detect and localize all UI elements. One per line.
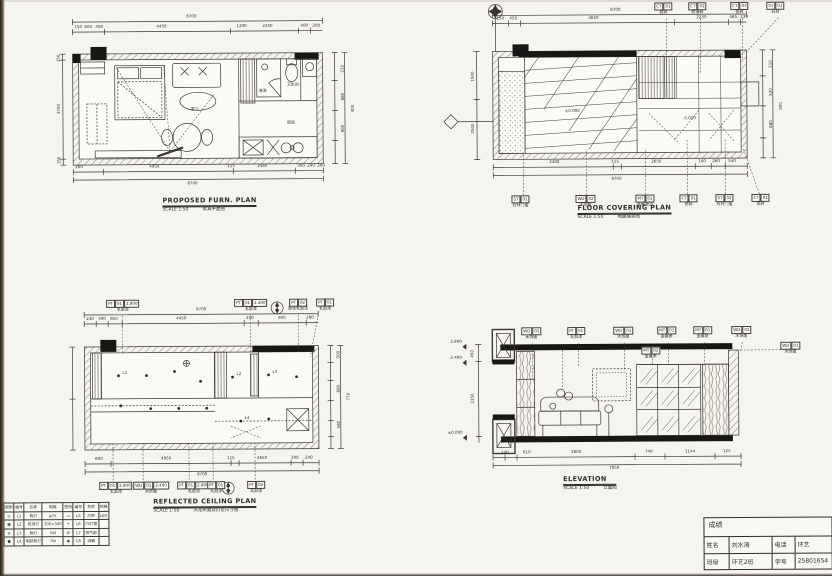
tag-label: 乳胶漆 — [247, 489, 265, 493]
legend-symbol: ☒ — [63, 528, 73, 537]
dim-label: 240 — [86, 317, 94, 321]
material-tag: ST01 石材门槛 — [511, 195, 529, 207]
level-label: -0.050 — [683, 116, 696, 120]
dim-label: 210 — [341, 65, 345, 73]
tag-label: 瓷砖 — [751, 202, 769, 206]
scan-edge-left — [0, 0, 5, 576]
ceiling-tag: PT01 乳胶漆 — [207, 481, 225, 493]
lighting-legend-table: 图例 编号 名称 规格 图例 编号 名称 规格 ⊙ L1 筒灯 φ75 ▭ L5… — [3, 502, 109, 546]
dim-label: 2500 — [471, 123, 475, 133]
plan-scale: SCALE 1:50 — [163, 208, 189, 213]
furn-plan-linework — [59, 17, 348, 183]
dim-label: 4950 — [149, 165, 159, 169]
dim-label: 200 — [75, 165, 83, 169]
field-label: 班级 — [705, 554, 730, 570]
ceiling-tag: PT01 乳胶漆 — [316, 299, 334, 311]
legend-cell: 5W — [42, 528, 63, 537]
tag-label: 防滑砖 — [688, 10, 706, 14]
dim-label: 200 — [317, 164, 325, 168]
dim-label: 150 — [57, 55, 61, 63]
dim-label: 850 — [110, 317, 118, 321]
dim-label: 600 — [84, 25, 92, 29]
plan-title-cn: 地面铺装图 — [618, 215, 641, 220]
legend-cell: L7 — [73, 528, 83, 537]
legend-cell: L4 — [14, 537, 24, 546]
dim-label: 280 — [306, 316, 314, 320]
material-tag: WD01 木饰面 — [780, 342, 800, 354]
legend-header: 图例 — [4, 503, 14, 512]
dim-label: 8700 — [196, 307, 206, 311]
dim-label: 770 — [347, 393, 351, 401]
level-label: ±0.000 — [448, 431, 463, 435]
legend-row: ● L4 明装筒灯 7W ◉ L8 浴霸 — [4, 536, 109, 545]
dim-label: 8700 — [186, 14, 196, 18]
material-tag: MT02 金属条 — [641, 347, 660, 359]
dim-label: 450 — [246, 316, 254, 320]
light-label: L4 — [245, 416, 250, 420]
tag-label: 防水乳胶漆 — [288, 307, 308, 311]
dim-label: 2400 — [549, 160, 559, 164]
field-value: 刘水涛 — [730, 537, 773, 553]
dim-label: 880 — [769, 120, 773, 128]
tag-label: 乳胶漆 — [234, 307, 267, 311]
dim-label: 8700 — [610, 8, 620, 12]
dim-label: 880 — [341, 93, 345, 101]
tag-label: 瓷砖 — [730, 10, 748, 14]
dim-label: 465 — [729, 15, 737, 19]
tag-label: 木饰面 — [133, 490, 169, 494]
material-tag: ST01 石材 — [766, 2, 784, 14]
dim-label: 150 — [496, 16, 504, 20]
dim-label: 150 — [57, 157, 61, 165]
tag-code: WD — [133, 482, 144, 490]
dim-label: 540 — [728, 159, 736, 163]
dim-label: 400 — [300, 24, 308, 28]
tag-label: 金属收边 — [635, 203, 654, 207]
room-label: 茶几 — [191, 107, 199, 111]
dim-label: 1500 — [471, 71, 475, 81]
dim-label: 120 — [740, 15, 748, 19]
tag-label: 乳胶漆 — [316, 307, 334, 311]
dim-label: 240 — [307, 164, 315, 168]
dim-label: 3700 — [57, 104, 61, 114]
light-label: L1 — [123, 371, 128, 375]
plan-title-cn: 立面图 — [603, 486, 617, 491]
tag-label: 石材门槛 — [511, 203, 529, 207]
level-label: ±0.000 — [565, 109, 580, 113]
dim-label: 4950 — [161, 456, 171, 460]
legend-cell: 吸顶灯 — [24, 520, 42, 529]
legend-cell: L8 — [73, 537, 83, 546]
tag-code: PT — [234, 299, 243, 307]
tag-code: PT — [106, 300, 115, 308]
score-label: 成绩 — [704, 517, 831, 537]
legend-cell — [99, 519, 109, 528]
furn-plan-title: PROPOSED FURN. PLAN SCALE 1:50家具平面图 — [162, 197, 256, 213]
dim-label: 740 — [645, 450, 653, 454]
material-tag: CT03 瓷砖 — [730, 2, 748, 14]
legend-row: ⊙ L1 筒灯 φ75 ▭ L5 灯带 LED — [4, 511, 109, 520]
material-tag: WD02 木地板 — [575, 195, 595, 207]
dim-label: 125 — [723, 449, 731, 453]
ceiling-plan-linework — [69, 301, 344, 495]
legend-cell: 灯带 — [83, 511, 98, 520]
tag-code: PT — [99, 482, 108, 490]
light-label: L2 — [237, 372, 242, 376]
dim-label: 900 — [779, 102, 783, 110]
tag-label: 乳胶漆 — [99, 490, 132, 494]
dim-label: 115 — [611, 160, 619, 164]
field-label: 电话 — [773, 537, 796, 553]
ceiling-tag: PT012.800 乳胶漆 — [106, 300, 139, 312]
plan-title-text: ELEVATION — [563, 476, 617, 485]
dim-label: 115 — [227, 164, 235, 168]
tag-label: 石材 — [766, 10, 784, 14]
dim-label: 4450 — [176, 316, 186, 320]
material-tag: CT01 瓷砖 — [679, 194, 697, 206]
ceiling-tag: PT012.800 乳胶漆 — [99, 482, 132, 494]
dim-label: 845 — [278, 316, 286, 320]
plan-scale: SCALE 1:50 — [578, 215, 604, 220]
field-value: 环艺 — [796, 536, 832, 552]
dim-label: 8700 — [197, 472, 207, 476]
elevation-title: ELEVATION SCALE 1:50立面图 — [563, 476, 617, 492]
dim-label: 8700 — [611, 177, 621, 181]
plan-title-cn: 家具平面图 — [202, 208, 225, 213]
dim-label: 880 — [337, 385, 341, 393]
field-value: 环艺2班 — [730, 553, 773, 569]
room-label: 淋浴 — [259, 89, 267, 93]
legend-cell: 7W — [42, 537, 63, 546]
legend-header-row: 图例 编号 名称 规格 图例 编号 名称 规格 — [4, 502, 109, 511]
material-tag: MT01 金属收边 — [635, 195, 654, 207]
dim-label: 500 — [336, 351, 340, 359]
tag-label: 木饰面 — [521, 335, 541, 339]
legend-header: 名称 — [24, 503, 42, 512]
dim-label: 115 — [227, 456, 235, 460]
legend-cell: 射灯 — [24, 528, 42, 537]
tag-code: PT — [177, 481, 186, 489]
dim-label: 240 — [305, 456, 313, 460]
dim-label: 140 — [501, 450, 509, 454]
tag-label: 金属条 — [657, 334, 676, 338]
dim-label: 2460 — [257, 164, 267, 168]
dim-label: 300 — [98, 317, 106, 321]
tag-label: 乳胶漆 — [177, 489, 210, 493]
legend-cell: 筒灯 — [24, 511, 42, 520]
material-tag: CT01 瓷砖 — [654, 2, 672, 14]
dim-label: 450 — [470, 350, 474, 358]
tag-label: 木饰面 — [780, 350, 800, 354]
ceiling-tag: PT012.800 乳胶漆 — [177, 481, 210, 493]
legend-cell — [99, 528, 109, 537]
dim-label: 1200 — [236, 24, 246, 28]
plan-scale: SCALE 1:50 — [563, 487, 589, 492]
legend-row: ▦ L2 吸顶灯 300×300 ━ L6 T5灯管 — [4, 519, 109, 528]
legend-header: 规格 — [42, 503, 63, 512]
tag-label: 金属条 — [641, 355, 660, 359]
dim-label: 580 — [337, 421, 341, 429]
legend-cell: T5灯管 — [83, 519, 98, 528]
dim-label: 300 — [291, 456, 299, 460]
legend-header: 编号 — [14, 503, 24, 512]
dim-label: 200 — [312, 24, 320, 28]
legend-cell: 排气扇 — [84, 528, 99, 537]
tag-label: 瓷砖 — [679, 202, 697, 206]
level-label: 2.800 — [450, 340, 461, 344]
drawing-sheet: 8700 150 600 300 4450 1200 2250 400 200 … — [0, 0, 832, 576]
legend-cell — [99, 536, 109, 545]
dim-label: 300 — [95, 25, 103, 29]
legend-symbol: ▦ — [4, 520, 14, 529]
dim-label: 300 — [297, 164, 305, 168]
dim-label: 260 — [712, 159, 720, 163]
ceiling-plan-title: REFLECTED CEILING PLAN SCALE 1:50天花布置及灯位… — [153, 498, 256, 514]
tag-label: 乳胶漆 — [567, 335, 585, 339]
dim-label: 900 — [341, 125, 345, 133]
material-tag: CT01 瓷砖 — [751, 194, 769, 206]
sheet-content: 8700 150 600 300 4450 1200 2250 400 200 … — [0, 0, 832, 576]
material-tag: WD01 木饰面 — [521, 327, 541, 339]
legend-cell: 300×300 — [42, 520, 63, 529]
legend-header: 规格 — [99, 502, 109, 511]
dim-label: 210 — [769, 60, 773, 68]
legend-cell: L5 — [73, 511, 83, 520]
title-block-row: 姓名 刘水涛 电话 环艺 — [705, 536, 832, 553]
scan-edge-top — [0, 0, 832, 2]
dim-label: 520 — [769, 88, 773, 96]
covering-plan-linework — [443, 3, 779, 196]
dim-label: 450 — [509, 16, 517, 20]
legend-header: 名称 — [83, 502, 98, 511]
tag-label: 木饰面 — [731, 334, 751, 338]
legend-symbol: ● — [4, 537, 14, 546]
ceiling-tag: PT02 防水乳胶漆 — [288, 299, 308, 311]
legend-symbol: ◉ — [63, 537, 73, 546]
field-label: 学号 — [773, 553, 796, 569]
dim-label: 4450 — [156, 25, 166, 29]
legend-cell: L1 — [14, 511, 24, 520]
dim-label: 140 — [698, 159, 706, 163]
room-label: 卫生间 — [287, 83, 299, 87]
dim-label: 610 — [523, 450, 531, 454]
title-block: 成绩 姓名 刘水涛 电话 环艺 班级 环艺2班 学号 25801654 — [703, 516, 832, 570]
legend-cell: 明装筒灯 — [24, 537, 42, 546]
dim-label: 150 — [74, 25, 82, 29]
material-tag: PT01 乳胶漆 — [567, 327, 585, 339]
dim-label: 7950 — [609, 466, 619, 470]
ceiling-tag: PT012.400 乳胶漆 — [234, 299, 267, 311]
legend-cell: φ75 — [42, 511, 63, 520]
legend-symbol: ⊖ — [4, 528, 14, 537]
ceiling-tag: PT02 乳胶漆 — [247, 481, 265, 493]
legend-symbol: ━ — [63, 520, 73, 529]
level-label: 2.400 — [450, 356, 461, 360]
dim-label: 4650 — [588, 16, 598, 20]
material-tag: ST02 石材门槛 — [715, 194, 733, 206]
legend-cell: L3 — [14, 528, 24, 537]
dim-label: 2250 — [696, 15, 706, 19]
tag-label: 瓷砖 — [654, 10, 672, 14]
legend-symbol: ▭ — [63, 511, 73, 520]
material-tag: MT01 金属条 — [693, 326, 712, 338]
tag-label: 乳胶漆 — [207, 489, 225, 493]
material-tag: MT01 金属条 — [657, 326, 676, 338]
tag-label: 乳胶漆 — [106, 308, 139, 312]
legend-cell: LED — [99, 511, 109, 520]
plan-scale: SCALE 1:50 — [153, 509, 179, 514]
legend-row: ⊖ L3 射灯 5W ☒ L7 排气扇 — [4, 528, 109, 537]
plan-title-cn: 天花布置及灯位尺寸图 — [193, 509, 238, 514]
dim-label: 3800 — [571, 450, 581, 454]
elevation-linework — [462, 328, 785, 469]
room-label: 厨房 — [287, 121, 295, 125]
field-value: 25801654 — [796, 553, 832, 569]
ceiling-tag: WD012.400 木饰面 — [133, 482, 169, 494]
tag-label: 金属条 — [693, 334, 712, 338]
dim-label: 600 — [95, 457, 103, 461]
tag-label: 木地板 — [575, 203, 595, 207]
tag-label: 木饰面 — [613, 335, 633, 339]
legend-symbol: ⊙ — [4, 511, 14, 520]
dim-label: 2650 — [257, 456, 267, 460]
dim-label: 2250 — [262, 24, 272, 28]
material-tag: WD01 木饰面 — [731, 326, 751, 338]
tag-label: 石材门槛 — [715, 202, 733, 206]
legend-header: 编号 — [73, 503, 83, 512]
dim-label: 2650 — [651, 159, 661, 163]
field-label: 姓名 — [705, 537, 730, 553]
material-tag: CT02 防滑砖 — [688, 2, 706, 14]
title-block-row: 班级 环艺2班 学号 25801654 — [705, 553, 832, 569]
legend-cell: 浴霸 — [84, 536, 99, 545]
legend-header: 图例 — [63, 503, 73, 512]
light-label: L3 — [272, 370, 277, 374]
legend-cell: L2 — [14, 520, 24, 529]
dim-label: 400 — [351, 105, 355, 113]
dim-label: 8700 — [187, 181, 197, 185]
legend-cell: L6 — [73, 520, 83, 529]
dim-label: 1144 — [685, 449, 695, 453]
material-tag: WD01 木饰面 — [613, 327, 633, 339]
dim-label: 2350 — [471, 393, 475, 403]
